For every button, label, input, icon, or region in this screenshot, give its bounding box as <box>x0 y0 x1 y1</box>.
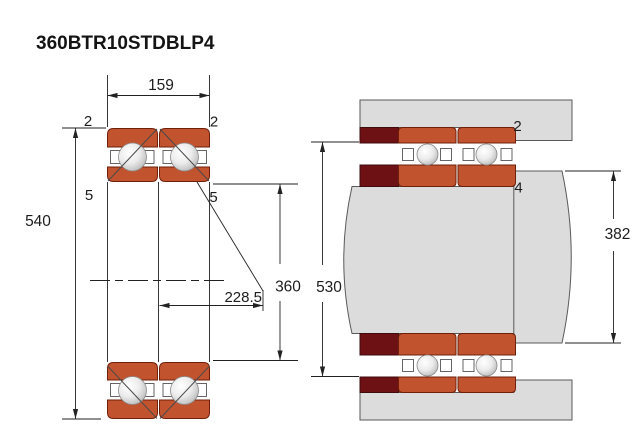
cage-segment <box>403 360 414 372</box>
label-top-right-2: 2 <box>210 114 218 131</box>
bearing-ball <box>417 144 438 165</box>
dim-load-center-text: 228.5 <box>224 289 262 306</box>
bearing-ball <box>119 143 147 171</box>
label-outer-2: 2 <box>513 118 521 135</box>
dim-od-text: 540 <box>25 213 51 230</box>
inner-ring <box>458 165 516 187</box>
shaft <box>344 171 572 343</box>
cage-segment <box>501 360 512 372</box>
bearing-ball <box>476 144 497 165</box>
cage-segment <box>463 360 474 372</box>
bearing-ball <box>417 355 438 376</box>
cage-segment <box>441 360 452 372</box>
bearing-ball <box>171 143 199 171</box>
dim-bore-text: 360 <box>275 279 301 296</box>
inner-ring <box>458 334 516 356</box>
dim-housing-text: 530 <box>316 279 342 296</box>
outer-spacer <box>360 128 399 144</box>
outer-ring <box>399 128 457 144</box>
label-mid-right-5: 5 <box>209 189 217 206</box>
bearing-ball <box>476 355 497 376</box>
outer-ring <box>399 377 457 393</box>
outer-ring <box>458 128 516 144</box>
bearing-ball <box>171 377 199 405</box>
cage-segment <box>403 149 414 161</box>
cage-segment <box>463 149 474 161</box>
label-top-left-2: 2 <box>84 113 92 130</box>
bearing-technical-drawing: 360BTR10STDBLP4 159 540 <box>0 0 640 440</box>
inner-ring <box>399 165 457 187</box>
cage-segment <box>441 149 452 161</box>
outer-spacer <box>360 377 399 393</box>
label-inner-4: 4 <box>514 180 522 197</box>
page-title: 360BTR10STDBLP4 <box>36 33 215 54</box>
inner-spacer <box>360 165 399 187</box>
dim-width-text: 159 <box>148 77 174 94</box>
inner-spacer <box>360 334 399 356</box>
label-mid-left-5: 5 <box>85 187 93 204</box>
bearing-ball <box>119 377 147 405</box>
inner-ring <box>399 334 457 356</box>
outer-ring <box>458 377 516 393</box>
dim-shoulder-text: 382 <box>605 226 631 243</box>
cage-segment <box>501 149 512 161</box>
